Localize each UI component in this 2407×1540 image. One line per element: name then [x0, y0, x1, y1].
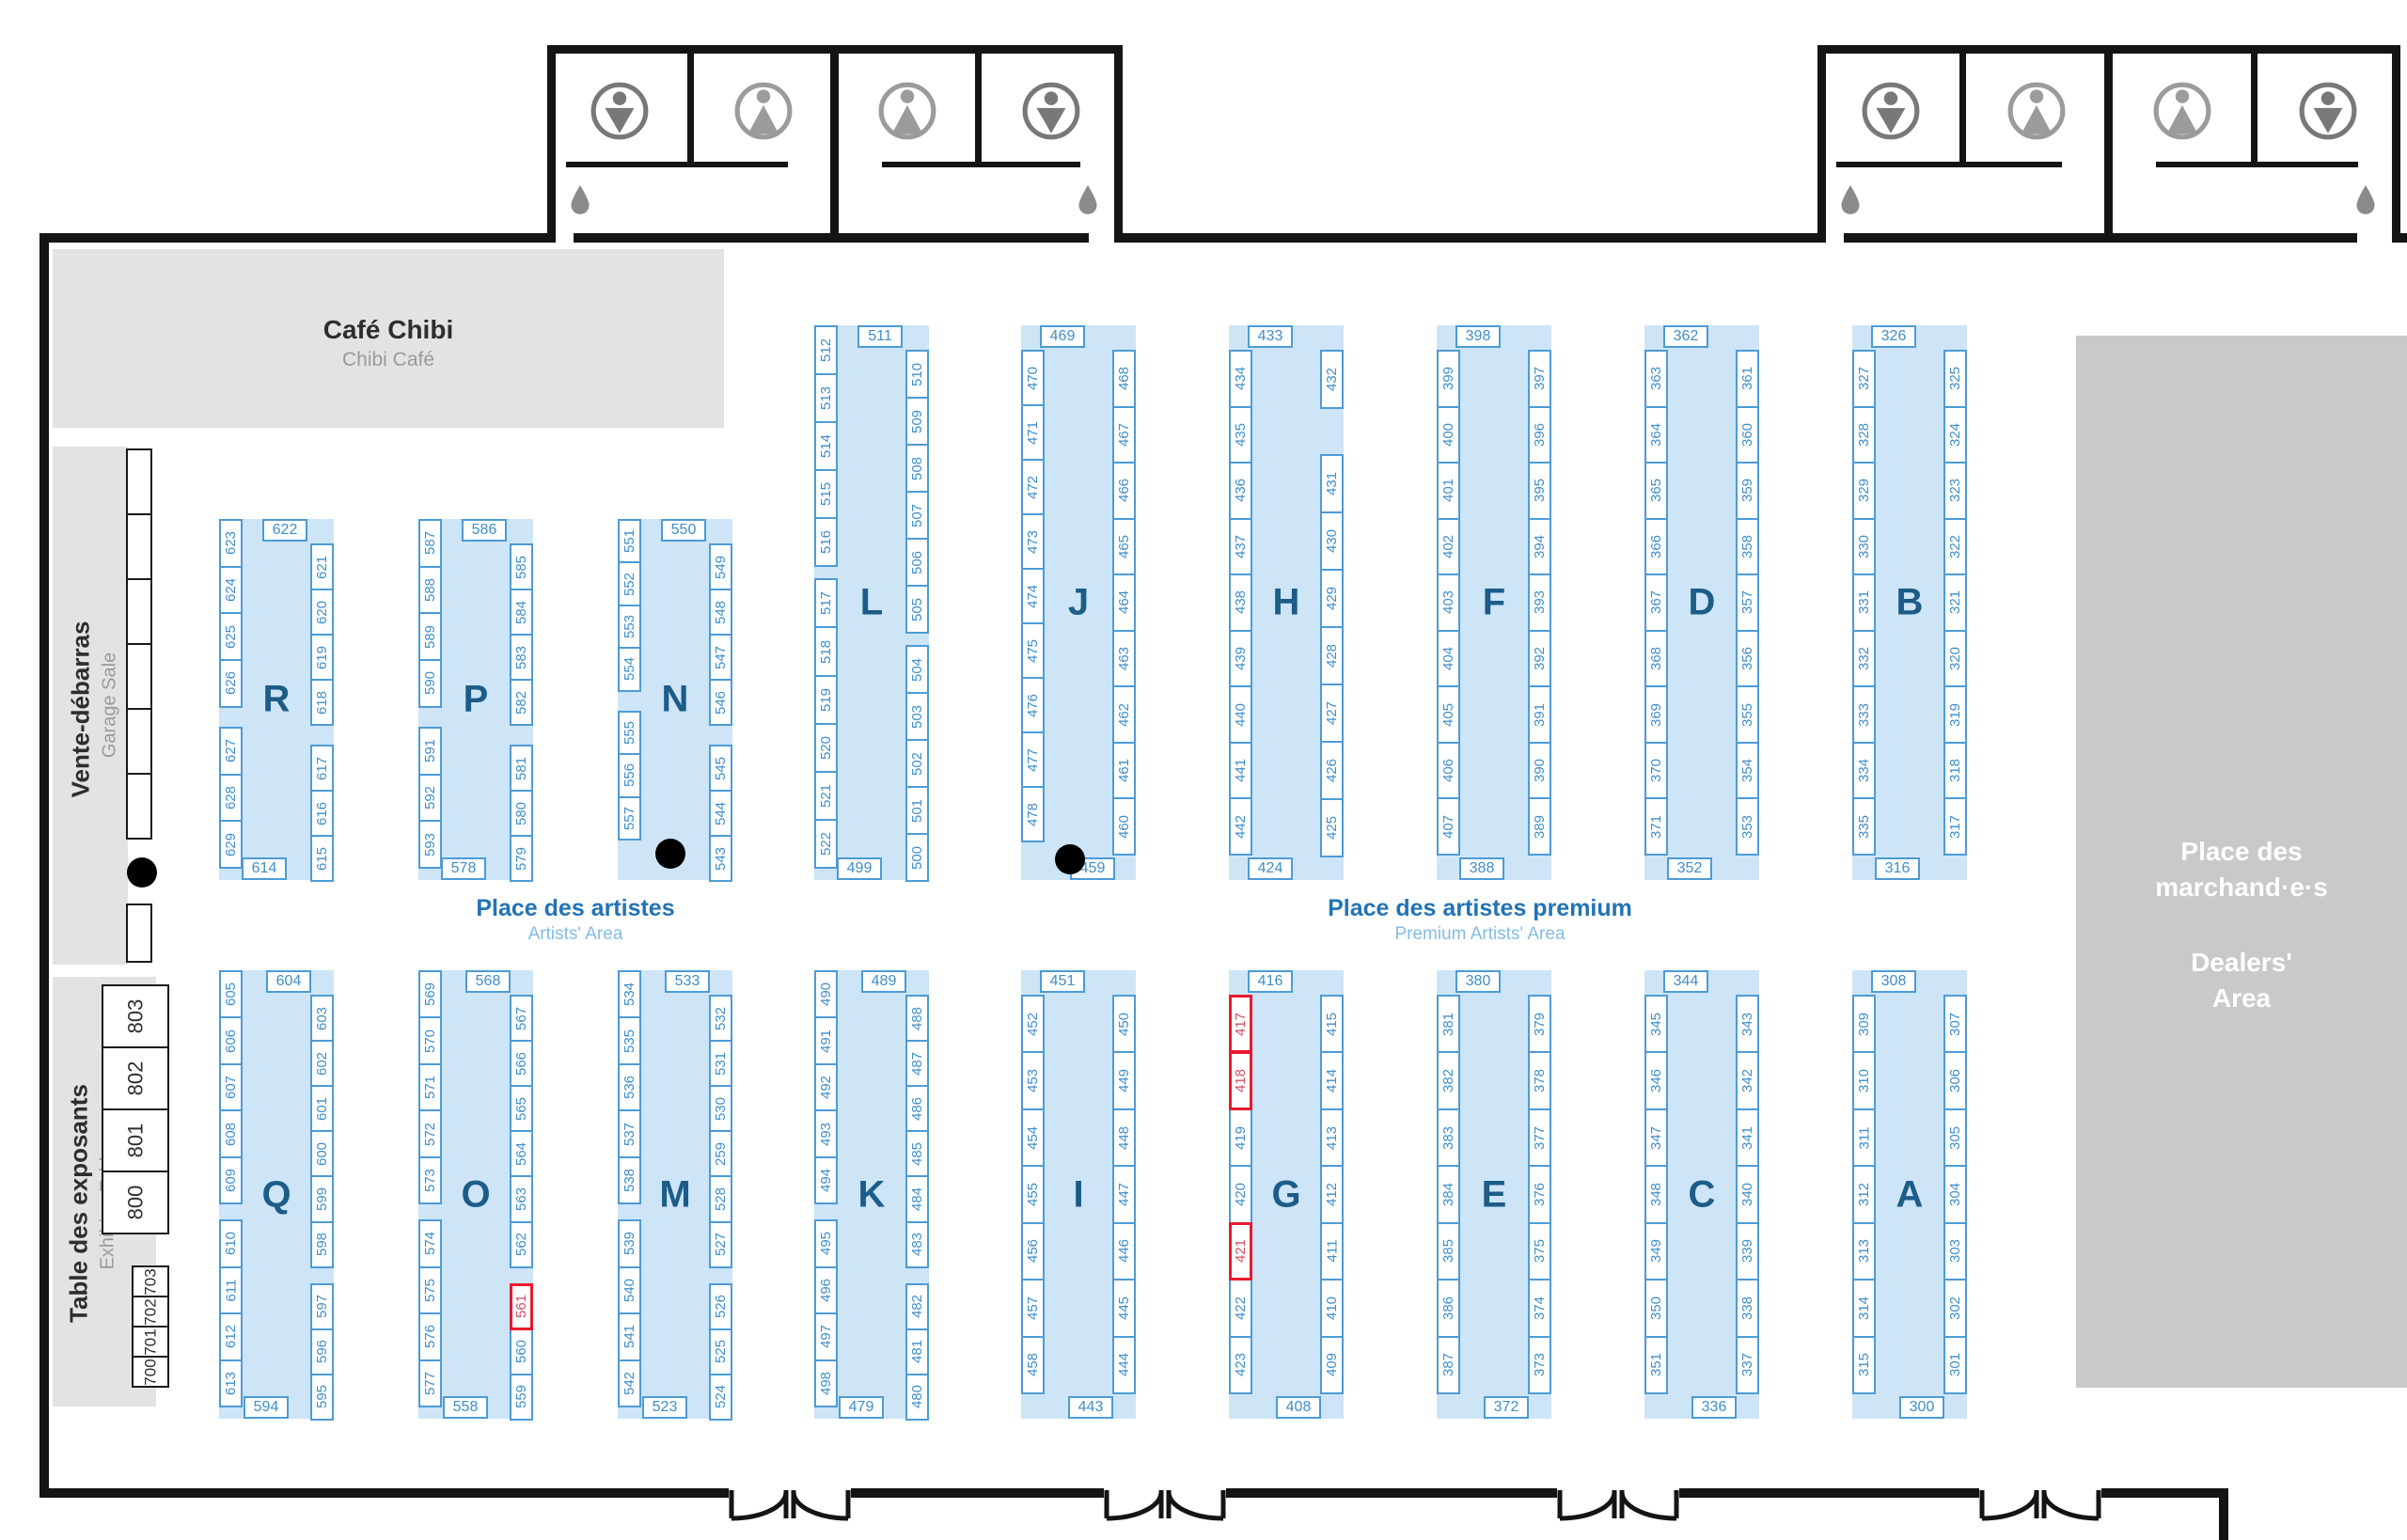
- table-cell-358[interactable]: 358: [1736, 518, 1759, 576]
- table-cell-446[interactable]: 446: [1112, 1222, 1136, 1281]
- table-cell-543[interactable]: 543: [709, 835, 732, 882]
- table-cell-457[interactable]: 457: [1021, 1279, 1045, 1337]
- table-cell-433[interactable]: 433: [1248, 325, 1293, 348]
- table-cell-575[interactable]: 575: [418, 1266, 442, 1314]
- table-cell-492[interactable]: 492: [814, 1063, 838, 1111]
- table-cell-373[interactable]: 373: [1528, 1336, 1551, 1394]
- table-cell-454[interactable]: 454: [1021, 1108, 1045, 1167]
- table-cell-564[interactable]: 564: [510, 1130, 533, 1177]
- exhibitor-table-701[interactable]: 701: [132, 1326, 169, 1358]
- table-cell-600[interactable]: 600: [310, 1130, 334, 1177]
- table-cell-538[interactable]: 538: [618, 1156, 641, 1204]
- table-cell-445[interactable]: 445: [1112, 1279, 1136, 1337]
- table-cell-477[interactable]: 477: [1021, 731, 1045, 788]
- table-cell-568[interactable]: 568: [465, 970, 511, 993]
- table-cell-321[interactable]: 321: [1943, 574, 1967, 632]
- table-cell-562[interactable]: 562: [510, 1221, 533, 1268]
- table-cell-522[interactable]: 522: [814, 819, 838, 869]
- table-cell-578[interactable]: 578: [441, 857, 486, 880]
- table-cell-303[interactable]: 303: [1943, 1222, 1967, 1281]
- exhibitor-table-702[interactable]: 702: [132, 1296, 169, 1328]
- table-cell-626[interactable]: 626: [219, 659, 243, 708]
- table-cell-586[interactable]: 586: [462, 519, 507, 542]
- table-cell-524[interactable]: 524: [709, 1374, 732, 1421]
- table-cell-593[interactable]: 593: [418, 820, 442, 869]
- table-cell-501[interactable]: 501: [905, 786, 929, 835]
- table-cell-617[interactable]: 617: [310, 745, 334, 792]
- table-cell-567[interactable]: 567: [510, 995, 533, 1042]
- table-cell-323[interactable]: 323: [1943, 462, 1967, 520]
- table-cell-393[interactable]: 393: [1528, 574, 1551, 632]
- table-cell-390[interactable]: 390: [1528, 742, 1551, 800]
- exhibitor-table-703[interactable]: 703: [132, 1265, 169, 1297]
- table-cell-443[interactable]: 443: [1068, 1396, 1113, 1419]
- table-cell-334[interactable]: 334: [1852, 742, 1876, 800]
- table-cell-602[interactable]: 602: [310, 1040, 334, 1087]
- table-cell-467[interactable]: 467: [1112, 406, 1136, 464]
- table-cell-424[interactable]: 424: [1248, 857, 1293, 880]
- table-cell-503[interactable]: 503: [905, 692, 929, 741]
- table-cell-580[interactable]: 580: [510, 790, 533, 837]
- table-cell-474[interactable]: 474: [1021, 568, 1045, 624]
- table-cell-348[interactable]: 348: [1644, 1165, 1668, 1223]
- table-cell-428[interactable]: 428: [1320, 626, 1344, 685]
- table-cell-488[interactable]: 488: [905, 995, 929, 1042]
- table-cell-455[interactable]: 455: [1021, 1165, 1045, 1223]
- table-cell-464[interactable]: 464: [1112, 574, 1136, 632]
- table-cell-479[interactable]: 479: [839, 1396, 884, 1419]
- table-cell-425[interactable]: 425: [1320, 798, 1344, 857]
- table-cell-481[interactable]: 481: [905, 1328, 929, 1375]
- table-cell-506[interactable]: 506: [905, 538, 929, 587]
- table-cell-546[interactable]: 546: [709, 679, 732, 726]
- table-cell-559[interactable]: 559: [510, 1374, 533, 1421]
- table-cell-588[interactable]: 588: [418, 566, 442, 615]
- table-cell-499[interactable]: 499: [837, 857, 882, 880]
- table-cell-569[interactable]: 569: [418, 970, 442, 1018]
- table-cell-406[interactable]: 406: [1437, 742, 1460, 800]
- table-cell-540[interactable]: 540: [618, 1266, 641, 1314]
- table-cell-490[interactable]: 490: [814, 970, 838, 1018]
- garage-sale-table[interactable]: [126, 773, 152, 840]
- table-cell-570[interactable]: 570: [418, 1016, 442, 1064]
- table-cell-371[interactable]: 371: [1644, 797, 1668, 856]
- table-cell-378[interactable]: 378: [1528, 1051, 1551, 1109]
- exhibitor-table-801[interactable]: 801: [102, 1108, 169, 1172]
- table-cell-478[interactable]: 478: [1021, 786, 1045, 842]
- table-cell-441[interactable]: 441: [1229, 742, 1252, 800]
- table-cell-452[interactable]: 452: [1021, 995, 1045, 1053]
- table-cell-438[interactable]: 438: [1229, 574, 1252, 632]
- table-cell-535[interactable]: 535: [618, 1016, 641, 1064]
- table-cell-370[interactable]: 370: [1644, 742, 1668, 800]
- table-cell-314[interactable]: 314: [1852, 1279, 1876, 1337]
- table-cell-550[interactable]: 550: [661, 519, 706, 542]
- table-cell-526[interactable]: 526: [709, 1283, 732, 1330]
- table-cell-577[interactable]: 577: [418, 1359, 442, 1407]
- table-cell-502[interactable]: 502: [905, 739, 929, 788]
- table-cell-472[interactable]: 472: [1021, 459, 1045, 515]
- table-cell-453[interactable]: 453: [1021, 1051, 1045, 1109]
- table-cell-450[interactable]: 450: [1112, 995, 1136, 1053]
- table-cell-391[interactable]: 391: [1528, 685, 1551, 744]
- table-cell-322[interactable]: 322: [1943, 518, 1967, 576]
- table-cell-347[interactable]: 347: [1644, 1108, 1668, 1167]
- table-cell-350[interactable]: 350: [1644, 1279, 1668, 1337]
- table-cell-604[interactable]: 604: [266, 970, 311, 993]
- table-cell-589[interactable]: 589: [418, 612, 442, 661]
- table-cell-592[interactable]: 592: [418, 774, 442, 823]
- table-cell-485[interactable]: 485: [905, 1130, 929, 1177]
- table-cell-345[interactable]: 345: [1644, 995, 1668, 1053]
- table-cell-594[interactable]: 594: [244, 1396, 289, 1419]
- table-cell-318[interactable]: 318: [1943, 742, 1967, 800]
- table-cell-341[interactable]: 341: [1736, 1108, 1759, 1167]
- table-cell-367[interactable]: 367: [1644, 574, 1668, 632]
- table-cell-456[interactable]: 456: [1021, 1222, 1045, 1281]
- table-cell-399[interactable]: 399: [1437, 350, 1460, 408]
- table-cell-471[interactable]: 471: [1021, 404, 1045, 461]
- table-cell-324[interactable]: 324: [1943, 406, 1967, 464]
- table-cell-312[interactable]: 312: [1852, 1165, 1876, 1223]
- table-cell-622[interactable]: 622: [262, 519, 307, 542]
- table-cell-427[interactable]: 427: [1320, 684, 1344, 743]
- table-cell-328[interactable]: 328: [1852, 406, 1876, 464]
- table-cell-320[interactable]: 320: [1943, 630, 1967, 688]
- table-cell-496[interactable]: 496: [814, 1266, 838, 1314]
- table-cell-307[interactable]: 307: [1943, 995, 1967, 1053]
- table-cell-259[interactable]: 259: [709, 1130, 732, 1177]
- table-cell-375[interactable]: 375: [1528, 1222, 1551, 1281]
- table-cell-422[interactable]: 422: [1229, 1279, 1252, 1337]
- table-cell-388[interactable]: 388: [1459, 857, 1504, 880]
- table-cell-398[interactable]: 398: [1455, 325, 1501, 348]
- table-cell-473[interactable]: 473: [1021, 513, 1045, 570]
- table-cell-527[interactable]: 527: [709, 1221, 732, 1268]
- table-cell-574[interactable]: 574: [418, 1219, 442, 1267]
- table-cell-458[interactable]: 458: [1021, 1336, 1045, 1394]
- table-cell-549[interactable]: 549: [709, 543, 732, 590]
- table-cell-531[interactable]: 531: [709, 1040, 732, 1087]
- table-cell-536[interactable]: 536: [618, 1063, 641, 1111]
- table-cell-364[interactable]: 364: [1644, 406, 1668, 464]
- table-cell-434[interactable]: 434: [1229, 350, 1252, 408]
- table-cell-429[interactable]: 429: [1320, 569, 1344, 628]
- table-cell-513[interactable]: 513: [814, 373, 838, 423]
- table-cell-448[interactable]: 448: [1112, 1108, 1136, 1167]
- table-cell-330[interactable]: 330: [1852, 518, 1876, 576]
- table-cell-400[interactable]: 400: [1437, 406, 1460, 464]
- table-cell-623[interactable]: 623: [219, 519, 243, 568]
- table-cell-548[interactable]: 548: [709, 589, 732, 636]
- table-cell-476[interactable]: 476: [1021, 677, 1045, 733]
- table-cell-608[interactable]: 608: [219, 1109, 243, 1157]
- table-cell-614[interactable]: 614: [242, 857, 287, 880]
- table-cell-585[interactable]: 585: [510, 543, 533, 590]
- table-cell-613[interactable]: 613: [219, 1359, 243, 1407]
- exhibitor-table-802[interactable]: 802: [102, 1046, 169, 1110]
- table-cell-587[interactable]: 587: [418, 519, 442, 568]
- table-cell-332[interactable]: 332: [1852, 630, 1876, 688]
- exhibitor-table-803[interactable]: 803: [102, 984, 169, 1048]
- table-cell-493[interactable]: 493: [814, 1109, 838, 1157]
- table-cell-436[interactable]: 436: [1229, 462, 1252, 520]
- table-cell-357[interactable]: 357: [1736, 574, 1759, 632]
- table-cell-440[interactable]: 440: [1229, 685, 1252, 744]
- table-cell-520[interactable]: 520: [814, 723, 838, 773]
- table-cell-528[interactable]: 528: [709, 1175, 732, 1222]
- table-cell-469[interactable]: 469: [1040, 325, 1085, 348]
- table-cell-302[interactable]: 302: [1943, 1279, 1967, 1337]
- table-cell-509[interactable]: 509: [905, 397, 929, 446]
- table-cell-329[interactable]: 329: [1852, 462, 1876, 520]
- table-cell-573[interactable]: 573: [418, 1156, 442, 1204]
- table-cell-511[interactable]: 511: [857, 325, 903, 348]
- table-cell-518[interactable]: 518: [814, 626, 838, 676]
- table-cell-552[interactable]: 552: [618, 561, 641, 605]
- table-cell-310[interactable]: 310: [1852, 1051, 1876, 1109]
- table-cell-516[interactable]: 516: [814, 517, 838, 567]
- table-cell-421[interactable]: 421: [1229, 1222, 1252, 1281]
- table-cell-576[interactable]: 576: [418, 1312, 442, 1360]
- table-cell-515[interactable]: 515: [814, 469, 838, 519]
- table-cell-363[interactable]: 363: [1644, 350, 1668, 408]
- table-cell-401[interactable]: 401: [1437, 462, 1460, 520]
- garage-sale-table[interactable]: [126, 643, 152, 710]
- table-cell-417[interactable]: 417: [1229, 995, 1252, 1053]
- table-cell-625[interactable]: 625: [219, 612, 243, 661]
- table-cell-360[interactable]: 360: [1736, 406, 1759, 464]
- table-cell-313[interactable]: 313: [1852, 1222, 1876, 1281]
- table-cell-407[interactable]: 407: [1437, 797, 1460, 856]
- table-cell-301[interactable]: 301: [1943, 1336, 1967, 1394]
- table-cell-325[interactable]: 325: [1943, 350, 1967, 408]
- table-cell-315[interactable]: 315: [1852, 1336, 1876, 1394]
- table-cell-463[interactable]: 463: [1112, 630, 1136, 688]
- table-cell-353[interactable]: 353: [1736, 797, 1759, 856]
- table-cell-507[interactable]: 507: [905, 491, 929, 540]
- table-cell-326[interactable]: 326: [1871, 325, 1916, 348]
- table-cell-349[interactable]: 349: [1644, 1222, 1668, 1281]
- table-cell-372[interactable]: 372: [1484, 1396, 1529, 1419]
- table-cell-612[interactable]: 612: [219, 1312, 243, 1360]
- table-cell-311[interactable]: 311: [1852, 1108, 1876, 1167]
- table-cell-601[interactable]: 601: [310, 1085, 334, 1132]
- table-cell-382[interactable]: 382: [1437, 1051, 1460, 1109]
- table-cell-319[interactable]: 319: [1943, 685, 1967, 744]
- table-cell-590[interactable]: 590: [418, 659, 442, 708]
- table-cell-494[interactable]: 494: [814, 1156, 838, 1204]
- table-cell-423[interactable]: 423: [1229, 1336, 1252, 1394]
- table-cell-462[interactable]: 462: [1112, 685, 1136, 744]
- table-cell-598[interactable]: 598: [310, 1221, 334, 1268]
- table-cell-339[interactable]: 339: [1736, 1222, 1759, 1281]
- table-cell-381[interactable]: 381: [1437, 995, 1460, 1053]
- table-cell-338[interactable]: 338: [1736, 1279, 1759, 1337]
- table-cell-304[interactable]: 304: [1943, 1165, 1967, 1223]
- table-cell-572[interactable]: 572: [418, 1109, 442, 1157]
- table-cell-410[interactable]: 410: [1320, 1279, 1344, 1337]
- table-cell-411[interactable]: 411: [1320, 1222, 1344, 1281]
- table-cell-361[interactable]: 361: [1736, 350, 1759, 408]
- table-cell-394[interactable]: 394: [1528, 518, 1551, 576]
- table-cell-403[interactable]: 403: [1437, 574, 1460, 632]
- table-cell-392[interactable]: 392: [1528, 630, 1551, 688]
- table-cell-530[interactable]: 530: [709, 1085, 732, 1132]
- table-cell-376[interactable]: 376: [1528, 1165, 1551, 1223]
- table-cell-486[interactable]: 486: [905, 1085, 929, 1132]
- table-cell-582[interactable]: 582: [510, 679, 533, 726]
- table-cell-408[interactable]: 408: [1276, 1396, 1321, 1419]
- table-cell-327[interactable]: 327: [1852, 350, 1876, 408]
- table-cell-379[interactable]: 379: [1528, 995, 1551, 1053]
- table-cell-555[interactable]: 555: [618, 711, 641, 755]
- table-cell-300[interactable]: 300: [1899, 1396, 1944, 1419]
- exhibitor-table-800[interactable]: 800: [102, 1171, 169, 1234]
- table-cell-517[interactable]: 517: [814, 578, 838, 628]
- table-cell-416[interactable]: 416: [1248, 970, 1293, 993]
- table-cell-579[interactable]: 579: [510, 835, 533, 882]
- table-cell-362[interactable]: 362: [1663, 325, 1708, 348]
- table-cell-344[interactable]: 344: [1663, 970, 1708, 993]
- table-cell-497[interactable]: 497: [814, 1312, 838, 1360]
- table-cell-487[interactable]: 487: [905, 1040, 929, 1087]
- table-cell-621[interactable]: 621: [310, 543, 334, 590]
- table-cell-624[interactable]: 624: [219, 566, 243, 615]
- table-cell-413[interactable]: 413: [1320, 1108, 1344, 1167]
- table-cell-629[interactable]: 629: [219, 820, 243, 869]
- table-cell-384[interactable]: 384: [1437, 1165, 1460, 1223]
- table-cell-523[interactable]: 523: [642, 1396, 687, 1419]
- table-cell-599[interactable]: 599: [310, 1175, 334, 1222]
- table-cell-597[interactable]: 597: [310, 1283, 334, 1330]
- table-cell-442[interactable]: 442: [1229, 797, 1252, 856]
- table-cell-583[interactable]: 583: [510, 634, 533, 681]
- table-cell-619[interactable]: 619: [310, 634, 334, 681]
- table-cell-316[interactable]: 316: [1875, 857, 1920, 880]
- table-cell-396[interactable]: 396: [1528, 406, 1551, 464]
- table-cell-595[interactable]: 595: [310, 1374, 334, 1421]
- table-cell-557[interactable]: 557: [618, 796, 641, 841]
- garage-sale-table[interactable]: [126, 904, 152, 963]
- table-cell-374[interactable]: 374: [1528, 1279, 1551, 1337]
- table-cell-465[interactable]: 465: [1112, 518, 1136, 576]
- table-cell-331[interactable]: 331: [1852, 574, 1876, 632]
- table-cell-340[interactable]: 340: [1736, 1165, 1759, 1223]
- table-cell-352[interactable]: 352: [1667, 857, 1712, 880]
- table-cell-563[interactable]: 563: [510, 1175, 533, 1222]
- table-cell-545[interactable]: 545: [709, 745, 732, 792]
- table-cell-380[interactable]: 380: [1455, 970, 1501, 993]
- table-cell-627[interactable]: 627: [219, 727, 243, 776]
- table-cell-615[interactable]: 615: [310, 835, 334, 882]
- table-cell-605[interactable]: 605: [219, 970, 243, 1018]
- table-cell-451[interactable]: 451: [1040, 970, 1085, 993]
- table-cell-489[interactable]: 489: [861, 970, 906, 993]
- table-cell-342[interactable]: 342: [1736, 1051, 1759, 1109]
- table-cell-591[interactable]: 591: [418, 727, 442, 776]
- table-cell-356[interactable]: 356: [1736, 630, 1759, 688]
- table-cell-566[interactable]: 566: [510, 1040, 533, 1087]
- table-cell-484[interactable]: 484: [905, 1175, 929, 1222]
- table-cell-389[interactable]: 389: [1528, 797, 1551, 856]
- table-cell-305[interactable]: 305: [1943, 1108, 1967, 1167]
- table-cell-430[interactable]: 430: [1320, 511, 1344, 571]
- table-cell-432[interactable]: 432: [1320, 350, 1344, 409]
- table-cell-377[interactable]: 377: [1528, 1108, 1551, 1167]
- table-cell-386[interactable]: 386: [1437, 1279, 1460, 1337]
- table-cell-395[interactable]: 395: [1528, 462, 1551, 520]
- table-cell-366[interactable]: 366: [1644, 518, 1668, 576]
- table-cell-359[interactable]: 359: [1736, 462, 1759, 520]
- table-cell-439[interactable]: 439: [1229, 630, 1252, 688]
- table-cell-354[interactable]: 354: [1736, 742, 1759, 800]
- table-cell-335[interactable]: 335: [1852, 797, 1876, 856]
- table-cell-525[interactable]: 525: [709, 1328, 732, 1375]
- table-cell-405[interactable]: 405: [1437, 685, 1460, 744]
- table-cell-404[interactable]: 404: [1437, 630, 1460, 688]
- table-cell-514[interactable]: 514: [814, 421, 838, 471]
- table-cell-333[interactable]: 333: [1852, 685, 1876, 744]
- garage-sale-table[interactable]: [126, 578, 152, 645]
- table-cell-309[interactable]: 309: [1852, 995, 1876, 1053]
- exhibitor-table-700[interactable]: 700: [132, 1356, 169, 1388]
- table-cell-561[interactable]: 561: [510, 1283, 533, 1330]
- table-cell-551[interactable]: 551: [618, 519, 641, 563]
- table-cell-537[interactable]: 537: [618, 1109, 641, 1157]
- table-cell-620[interactable]: 620: [310, 589, 334, 636]
- table-cell-419[interactable]: 419: [1229, 1108, 1252, 1167]
- table-cell-412[interactable]: 412: [1320, 1165, 1344, 1223]
- table-cell-402[interactable]: 402: [1437, 518, 1460, 576]
- table-cell-414[interactable]: 414: [1320, 1051, 1344, 1109]
- table-cell-336[interactable]: 336: [1691, 1396, 1737, 1419]
- table-cell-461[interactable]: 461: [1112, 742, 1136, 800]
- table-cell-542[interactable]: 542: [618, 1359, 641, 1407]
- table-cell-565[interactable]: 565: [510, 1085, 533, 1132]
- table-cell-480[interactable]: 480: [905, 1374, 929, 1421]
- table-cell-343[interactable]: 343: [1736, 995, 1759, 1053]
- table-cell-618[interactable]: 618: [310, 679, 334, 726]
- table-cell-409[interactable]: 409: [1320, 1336, 1344, 1394]
- table-cell-449[interactable]: 449: [1112, 1051, 1136, 1109]
- table-cell-437[interactable]: 437: [1229, 518, 1252, 576]
- garage-sale-table[interactable]: [126, 708, 152, 775]
- table-cell-504[interactable]: 504: [905, 645, 929, 694]
- table-cell-500[interactable]: 500: [905, 833, 929, 882]
- table-cell-534[interactable]: 534: [618, 970, 641, 1018]
- table-cell-510[interactable]: 510: [905, 350, 929, 399]
- table-cell-553[interactable]: 553: [618, 605, 641, 649]
- table-cell-351[interactable]: 351: [1644, 1336, 1668, 1394]
- table-cell-483[interactable]: 483: [905, 1221, 929, 1268]
- table-cell-317[interactable]: 317: [1943, 797, 1967, 856]
- table-cell-468[interactable]: 468: [1112, 350, 1136, 408]
- table-cell-607[interactable]: 607: [219, 1063, 243, 1111]
- table-cell-560[interactable]: 560: [510, 1328, 533, 1375]
- table-cell-355[interactable]: 355: [1736, 685, 1759, 744]
- table-cell-418[interactable]: 418: [1229, 1051, 1252, 1109]
- table-cell-383[interactable]: 383: [1437, 1108, 1460, 1167]
- table-cell-603[interactable]: 603: [310, 995, 334, 1042]
- garage-sale-table[interactable]: [126, 513, 152, 580]
- table-cell-616[interactable]: 616: [310, 790, 334, 837]
- table-cell-337[interactable]: 337: [1736, 1336, 1759, 1394]
- table-cell-444[interactable]: 444: [1112, 1336, 1136, 1394]
- table-cell-628[interactable]: 628: [219, 774, 243, 823]
- table-cell-365[interactable]: 365: [1644, 462, 1668, 520]
- table-cell-447[interactable]: 447: [1112, 1165, 1136, 1223]
